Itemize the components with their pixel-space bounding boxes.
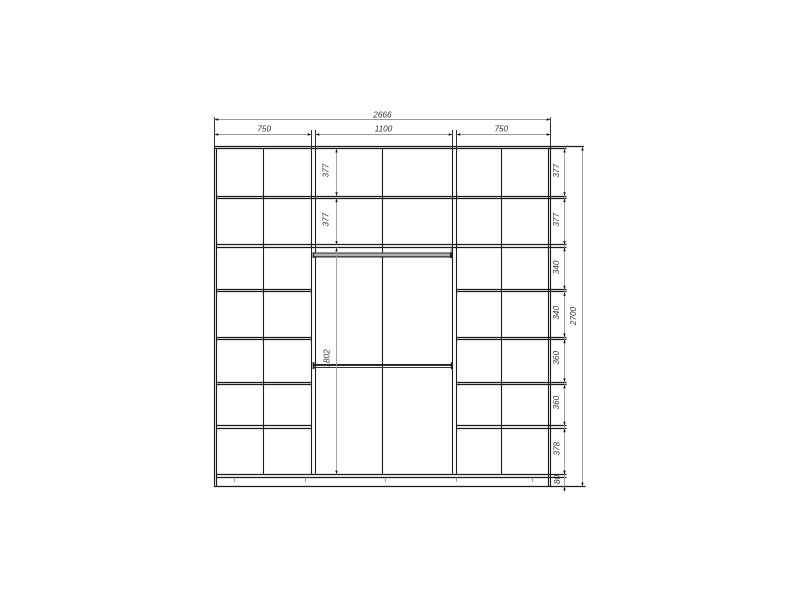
svg-text:340: 340 xyxy=(552,306,561,320)
svg-text:377: 377 xyxy=(322,163,331,177)
svg-text:378: 378 xyxy=(553,441,562,455)
svg-text:340: 340 xyxy=(552,260,561,274)
svg-text:377: 377 xyxy=(552,164,561,178)
svg-text:750: 750 xyxy=(494,124,508,133)
svg-text:750: 750 xyxy=(257,124,271,133)
svg-text:1802: 1802 xyxy=(322,349,331,368)
svg-text:2700: 2700 xyxy=(569,306,578,326)
svg-text:360: 360 xyxy=(552,351,561,365)
svg-text:360: 360 xyxy=(552,395,561,409)
svg-text:2666: 2666 xyxy=(372,110,392,119)
svg-text:80: 80 xyxy=(553,475,562,485)
svg-text:1100: 1100 xyxy=(375,124,393,133)
svg-text:377: 377 xyxy=(552,213,561,227)
svg-text:377: 377 xyxy=(322,212,331,226)
